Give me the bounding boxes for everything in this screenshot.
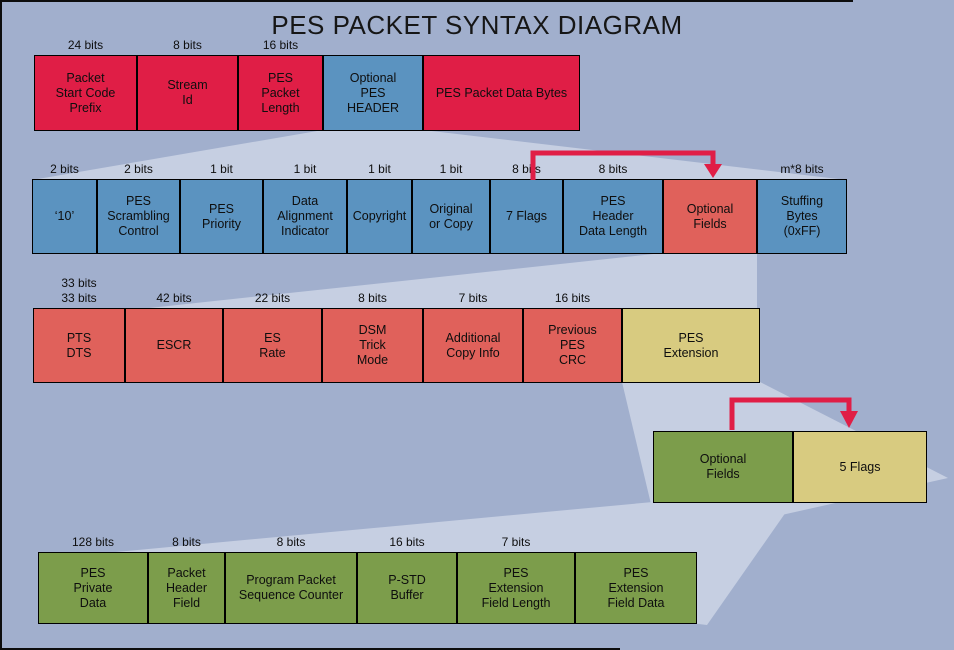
box-label: PES Packet Data Bytes xyxy=(436,86,567,101)
box-label: Packet Start Code Prefix xyxy=(56,71,116,116)
box-label: PES Extension Field Data xyxy=(608,566,665,611)
box-pes-packet-data-bytes: PES Packet Data Bytes xyxy=(423,55,580,131)
bits-label: 7 bits xyxy=(457,535,575,550)
box-label: PES Header Data Length xyxy=(579,194,647,239)
box-label: Optional Fields xyxy=(687,202,734,232)
box-pts-dts: PTS DTS xyxy=(33,308,125,383)
box-10: ‘10’ xyxy=(32,179,97,254)
box-dsm-trick-mode: DSM Trick Mode xyxy=(322,308,423,383)
box-label: ES Rate xyxy=(259,331,285,361)
box-optional-fields: Optional Fields xyxy=(653,431,793,503)
box-label: DSM Trick Mode xyxy=(357,323,388,368)
box-label: PTS DTS xyxy=(67,331,92,361)
pes-packet-syntax-diagram: Packet Start Code Prefix24 bitsStream Id… xyxy=(0,0,954,650)
bits-label: 33 bits 33 bits xyxy=(33,276,125,306)
bits-label: 1 bit xyxy=(412,162,490,177)
box-label: Stuffing Bytes (0xFF) xyxy=(781,194,823,239)
box-pes-scrambling-control: PES Scrambling Control xyxy=(97,179,180,254)
box-label: Optional Fields xyxy=(700,452,747,482)
box-copyright: Copyright xyxy=(347,179,412,254)
page-title: PES PACKET SYNTAX DIAGRAM xyxy=(0,10,954,41)
box-label: Packet Header Field xyxy=(166,566,207,611)
box-label: ‘10’ xyxy=(55,209,74,224)
box-program-packet-sequence-counter: Program Packet Sequence Counter xyxy=(225,552,357,624)
box-packet-header-field: Packet Header Field xyxy=(148,552,225,624)
box-pes-header-data-length: PES Header Data Length xyxy=(563,179,663,254)
box-label: Stream Id xyxy=(167,78,207,108)
box-label: Optional PES HEADER xyxy=(347,71,399,116)
box-label: Previous PES CRC xyxy=(548,323,597,368)
box-label: PES Extension Field Length xyxy=(482,566,551,611)
bits-label: 128 bits xyxy=(38,535,148,550)
box-label: PES Priority xyxy=(202,202,241,232)
box-optional-fields: Optional Fields xyxy=(663,179,757,254)
box-additional-copy-info: Additional Copy Info xyxy=(423,308,523,383)
box-label: Original or Copy xyxy=(429,202,473,232)
bits-label: 1 bit xyxy=(263,162,347,177)
box-label: 7 Flags xyxy=(506,209,547,224)
box-label: Additional Copy Info xyxy=(446,331,501,361)
box-5-flags: 5 Flags xyxy=(793,431,927,503)
box-label: PES Packet Length xyxy=(261,71,299,116)
box-pes-priority: PES Priority xyxy=(180,179,263,254)
box-escr: ESCR xyxy=(125,308,223,383)
bits-label: 1 bit xyxy=(180,162,263,177)
box-original-or-copy: Original or Copy xyxy=(412,179,490,254)
box-packet-start-code-prefix: Packet Start Code Prefix xyxy=(34,55,137,131)
bits-label: m*8 bits xyxy=(757,162,847,177)
bits-label: 16 bits xyxy=(523,291,622,306)
bits-label: 8 bits xyxy=(563,162,663,177)
box-7-flags: 7 Flags xyxy=(490,179,563,254)
box-label: P-STD Buffer xyxy=(388,573,426,603)
box-pes-extension-field-data: PES Extension Field Data xyxy=(575,552,697,624)
box-label: PES Scrambling Control xyxy=(107,194,170,239)
bits-label: 8 bits xyxy=(322,291,423,306)
bits-label: 22 bits xyxy=(223,291,322,306)
box-label: Copyright xyxy=(353,209,407,224)
box-label: 5 Flags xyxy=(840,460,881,475)
box-label: ESCR xyxy=(157,338,192,353)
box-es-rate: ES Rate xyxy=(223,308,322,383)
box-label: Program Packet Sequence Counter xyxy=(239,573,343,603)
bits-label: 8 bits xyxy=(148,535,225,550)
bits-label: 8 bits xyxy=(490,162,563,177)
box-data-alignment-indicator: Data Alignment Indicator xyxy=(263,179,347,254)
bits-label: 2 bits xyxy=(97,162,180,177)
bits-label: 1 bit xyxy=(347,162,412,177)
box-pes-extension-field-length: PES Extension Field Length xyxy=(457,552,575,624)
bits-label: 16 bits xyxy=(357,535,457,550)
box-pes-extension: PES Extension xyxy=(622,308,760,383)
bits-label: 42 bits xyxy=(125,291,223,306)
box-previous-pes-crc: Previous PES CRC xyxy=(523,308,622,383)
bits-label: 7 bits xyxy=(423,291,523,306)
box-pes-private-data: PES Private Data xyxy=(38,552,148,624)
bits-label: 2 bits xyxy=(32,162,97,177)
diagram-boxes-layer: Packet Start Code Prefix24 bitsStream Id… xyxy=(0,0,954,650)
bits-label: 8 bits xyxy=(225,535,357,550)
box-pes-packet-length: PES Packet Length xyxy=(238,55,323,131)
box-p-std-buffer: P-STD Buffer xyxy=(357,552,457,624)
box-stream-id: Stream Id xyxy=(137,55,238,131)
box-label: PES Extension xyxy=(664,331,719,361)
box-stuffing-bytes-0xff: Stuffing Bytes (0xFF) xyxy=(757,179,847,254)
box-label: PES Private Data xyxy=(74,566,113,611)
box-label: Data Alignment Indicator xyxy=(277,194,333,239)
box-optional-pes-header: Optional PES HEADER xyxy=(323,55,423,131)
